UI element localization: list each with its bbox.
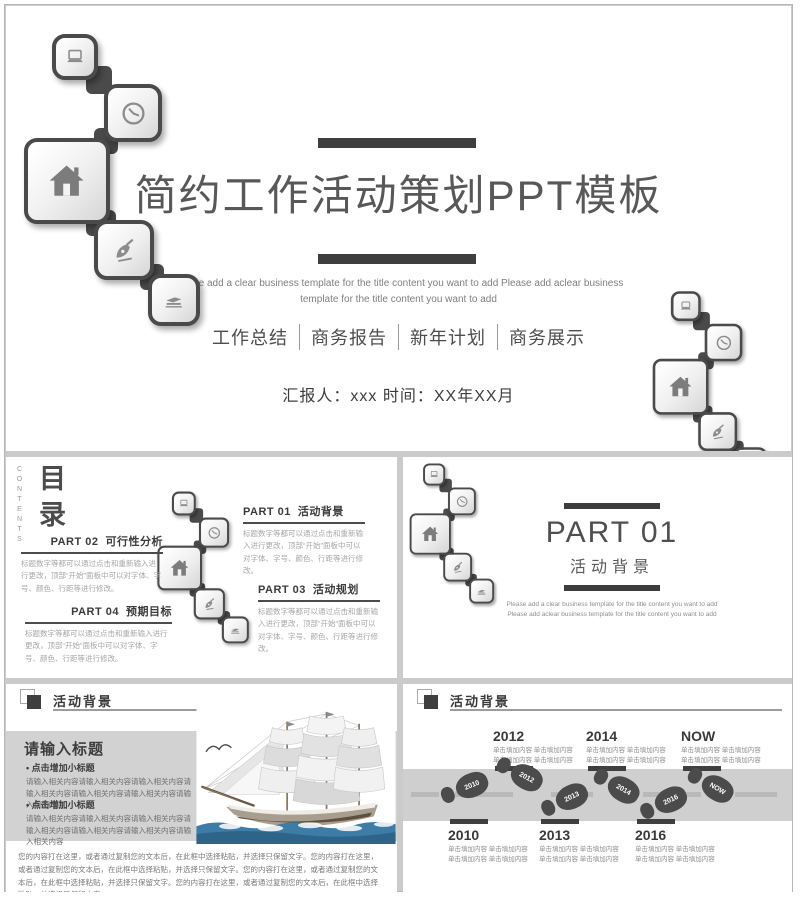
toc-part-number: PART 04 [71,606,119,618]
pen-icon [94,220,154,280]
cover-tag: 商务展示 [497,324,596,350]
bullet-body: 请输入相关内容请输入相关内容请输入相关内容请输入相关内容请输入相关内容请输入相关… [26,813,198,848]
milestone-year: 2016 [635,827,735,843]
toc-part-name: 预期目标 [126,606,172,618]
cover-tag-row: 工作总结商务报告新年计划商务展示 [6,324,791,350]
bullet-item: 点击增加小标题 请输入相关内容请输入相关内容请输入相关内容请输入相关内容请输入相… [26,798,198,848]
bullet-heading: 点击增加小标题 [26,761,198,774]
footprint-year: 2014 [615,783,632,797]
pen-icon [194,588,225,619]
toc-rule [258,600,380,602]
milestone-2010: 2010 单击填加内容 单击填加内容 单击填加内容 单击填加内容 [448,827,548,865]
slide-cover-thumbnail[interactable]: 简约工作活动策划PPT模板 Please add a clear busines… [6,6,791,451]
toc-part-number: PART 01 [243,506,291,518]
toc-item-part03: PART 03活动规划 标题数字等都可以通过点击和重新输入进行更改，顶部“开始”… [258,581,380,656]
milestone-2014: 2014 单击填加内容 单击填加内容 单击填加内容 单击填加内容 [586,728,686,766]
pen-icon [698,412,737,451]
milestone-year: 2013 [539,827,639,843]
home-icon [157,546,202,591]
milestone-year: 2014 [586,728,686,744]
cover-tag: 工作总结 [201,324,299,350]
toc-heading: PART 01活动背景 [243,503,365,519]
part-number: PART 01 [497,516,727,550]
toc-part-name: 可行性分析 [106,536,164,548]
clock-icon [448,487,476,515]
milestone-year: 2010 [448,827,548,843]
toc-part-name: 活动规划 [313,584,359,596]
toc-description: 标题数字等都可以通过点击和重新输入进行更改，顶部“开始”面板中可以对字体、字号、… [25,628,172,665]
home-icon [24,138,110,224]
footprint-year: NOW [708,781,726,796]
books-icon [733,447,767,451]
part-name: 活动背景 [497,553,727,577]
footprint-year: 2010 [463,779,480,791]
milestone-note: 单击填加内容 单击填加内容 单击填加内容 单击填加内容 [448,845,548,865]
laptop-icon [172,492,196,516]
milestone-note: 单击填加内容 单击填加内容 单击填加内容 单击填加内容 [635,845,735,865]
books-icon [148,274,200,326]
header-square-marker-icon [27,695,41,709]
milestone-2016: 2016 单击填加内容 单击填加内容 单击填加内容 单击填加内容 [635,827,735,865]
laptop-icon [671,291,701,321]
part-divider-bar-bottom [564,585,660,591]
toc-part-number: PART 02 [51,536,99,548]
footprint-year: 2013 [563,790,580,803]
books-icon [222,616,249,643]
toc-description: 标题数字等都可以通过点击和重新输入进行更改，顶部“开始”面板中可以对字体、字号、… [21,558,163,595]
toc-item-part04: PART 04预期目标 标题数字等都可以通过点击和重新输入进行更改，顶部“开始”… [25,603,172,665]
home-icon [410,513,451,554]
toc-item-part01: PART 01活动背景 标题数字等都可以通过点击和重新输入进行更改，顶部“开始”… [243,503,365,578]
toc-item-part02: PART 02可行性分析 标题数字等都可以通过点击和重新输入进行更改，顶部“开始… [21,533,163,595]
contents-title-vertical: 目录 [31,464,70,536]
clock-icon [199,518,229,548]
toc-rule [25,622,172,624]
cover-subtitle: Please add a clear business template for… [164,276,634,308]
body-paragraph: 您的内容打在这里，或者通过复制您的文本后，在此框中选择粘贴，并选择只保留文字。您… [18,851,385,892]
part-divider-block: PART 01 活动背景 Please add a clear business… [497,503,727,621]
footprint-year: 2016 [662,793,679,806]
cover-title: 简约工作活动策划PPT模板 [6,162,791,223]
toc-heading: PART 04预期目标 [25,603,172,619]
template-preview-board: 简约工作活动策划PPT模板 Please add a clear busines… [4,4,793,892]
slide-contents-thumbnail[interactable]: CONTENTS 目录 PART 01活动背景 标题数字等都可以通过点击和重新输… [6,457,397,678]
footprint-year: 2012 [518,771,535,784]
slide-content-ship-thumbnail[interactable]: 活动背景 请输入标题 点击增加小标题 请输入相关内容请输入相关内容请输入相关内容… [6,684,397,892]
milestone-2013: 2013 单击填加内容 单击填加内容 单击填加内容 单击填加内容 [539,827,639,865]
toc-heading: PART 02可行性分析 [21,533,163,549]
milestone-year: 2012 [493,728,593,744]
slide-timeline-thumbnail[interactable]: 活动背景 2012 单击填加内容 单击填加内容 单击填加内容 单击填加内容 20… [403,684,792,892]
toc-description: 标题数字等都可以通过点击和重新输入进行更改，顶部“开始”面板中可以对字体、字号、… [243,528,365,578]
milestone-year: NOW [681,728,781,744]
slide-part01-thumbnail[interactable]: PART 01 活动背景 Please add a clear business… [403,457,792,678]
road-dash [411,792,439,797]
sailing-ship-image [195,706,397,844]
part-subtitle: Please add a clear business template for… [497,600,727,621]
toc-heading: PART 03活动规划 [258,581,380,597]
cover-tag: 商务报告 [299,324,398,350]
panel-title: 请输入标题 [24,738,104,759]
pen-icon [443,553,472,582]
toc-part-name: 活动背景 [298,506,344,518]
header-square-marker-icon [424,695,438,709]
part-divider-bar-top [564,503,660,509]
laptop-icon [423,463,445,485]
milestone-note: 单击填加内容 单击填加内容 单击填加内容 单击填加内容 [539,845,639,865]
title-divider-bar-bottom [318,254,476,264]
icon-chain-decoration [641,273,771,451]
title-divider-bar-top [318,138,476,148]
toc-rule [243,522,365,524]
bullet-heading: 点击增加小标题 [26,798,198,811]
road-dash [735,792,777,797]
section-header-rule [450,709,782,711]
milestone-now: NOW 单击填加内容 单击填加内容 单击填加内容 单击填加内容 [681,728,781,766]
toc-rule [21,552,163,554]
laptop-icon [52,34,98,80]
toc-part-number: PART 03 [258,584,306,596]
road-tick [450,819,488,824]
section-header-title: 活动背景 [450,691,510,710]
icon-chain-decoration [403,457,497,608]
toc-description: 标题数字等都可以通过点击和重新输入进行更改，顶部“开始”面板中可以对字体、字号、… [258,606,380,656]
books-icon [469,579,494,604]
clock-icon [104,84,162,142]
cover-reporter-line: 汇报人：xxx 时间：XX年XX月 [6,382,791,406]
section-header-title: 活动背景 [53,691,113,710]
cover-tag: 新年计划 [398,324,497,350]
